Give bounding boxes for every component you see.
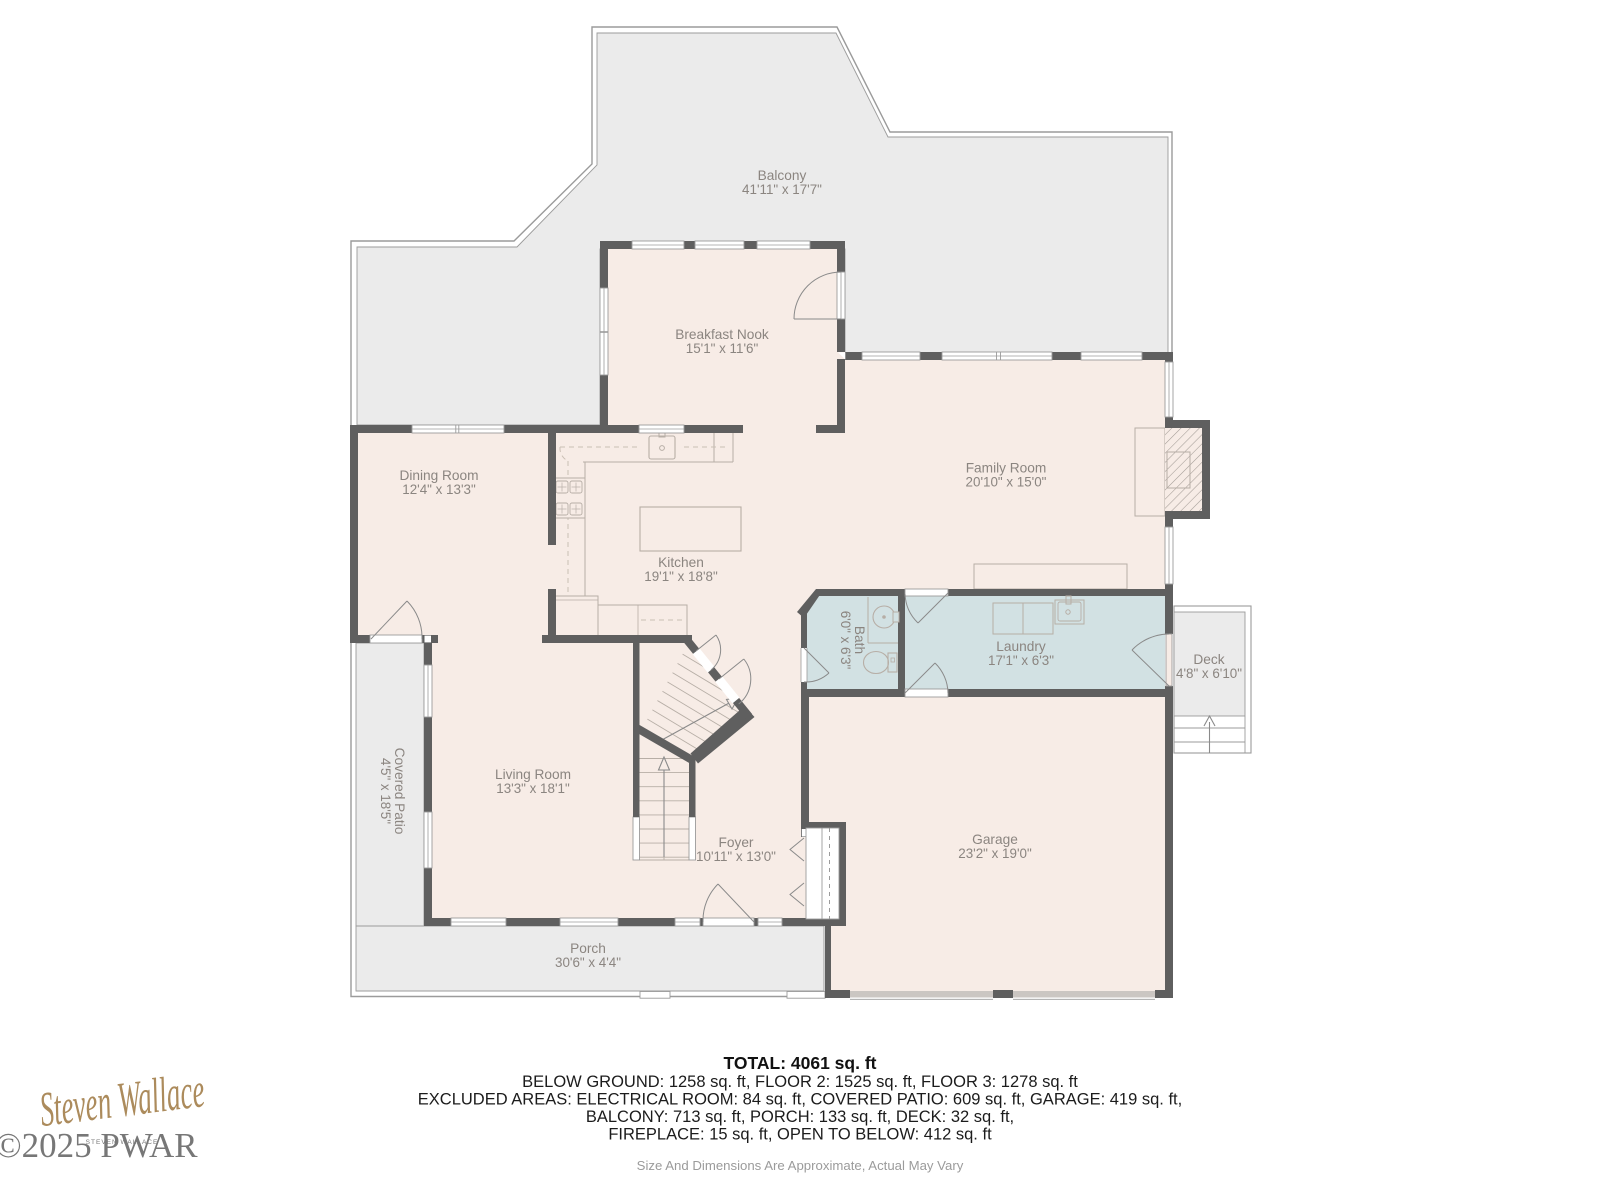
svg-text:EXCLUDED AREAS: ELECTRICAL ROO: EXCLUDED AREAS: ELECTRICAL ROOM: 84 sq. … xyxy=(418,1091,1182,1109)
svg-text:TOTAL: 4061 sq. ft: TOTAL: 4061 sq. ft xyxy=(724,1053,877,1073)
svg-text:BALCONY: 713 sq. ft, PORCH: 13: BALCONY: 713 sq. ft, PORCH: 133 sq. ft, … xyxy=(586,1108,1014,1126)
svg-text:Family Room20'10" x 15'0": Family Room20'10" x 15'0" xyxy=(966,461,1047,490)
svg-text:BELOW GROUND: 1258 sq. ft, FLO: BELOW GROUND: 1258 sq. ft, FLOOR 2: 1525… xyxy=(522,1073,1078,1091)
svg-text:Size And Dimensions Are Approx: Size And Dimensions Are Approximate, Act… xyxy=(637,1158,964,1173)
svg-text:Breakfast Nook15'1" x 11'6": Breakfast Nook15'1" x 11'6" xyxy=(675,327,769,356)
svg-text:Laundry17'1" x 6'3": Laundry17'1" x 6'3" xyxy=(988,639,1054,668)
svg-text:STEVEN WALLACE: STEVEN WALLACE xyxy=(86,1139,159,1146)
svg-text:Covered Patio4'5" x 18'5": Covered Patio4'5" x 18'5" xyxy=(378,748,407,835)
svg-text:Living Room13'3" x 18'1": Living Room13'3" x 18'1" xyxy=(495,767,571,796)
svg-text:Dining Room12'4" x 13'3": Dining Room12'4" x 13'3" xyxy=(399,468,478,497)
svg-text:FIREPLACE: 15 sq. ft, OPEN TO: FIREPLACE: 15 sq. ft, OPEN TO BELOW: 412… xyxy=(608,1126,992,1144)
